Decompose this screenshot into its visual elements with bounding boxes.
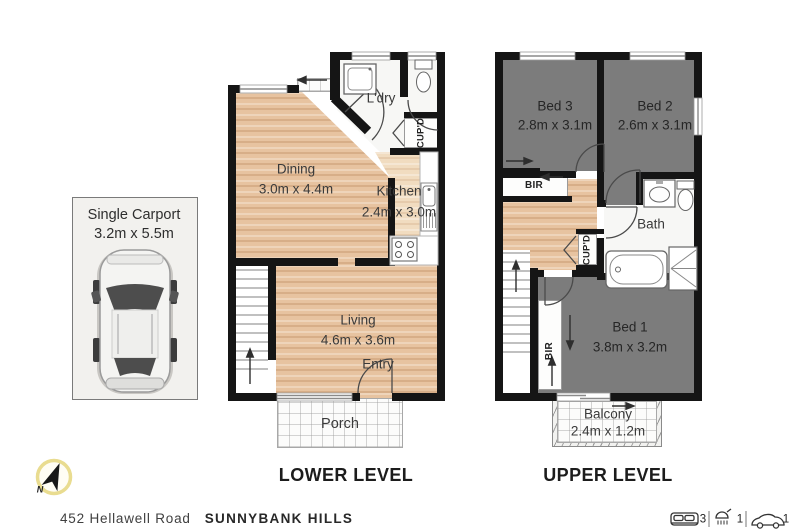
living-label: Living <box>340 313 375 327</box>
toilet-icon-upper <box>677 181 694 211</box>
bifold-door-upper <box>564 236 576 264</box>
entry-label: Entry <box>362 357 394 371</box>
bir-bed1-label: BIR <box>545 342 555 360</box>
bed-count: 3 <box>700 514 706 526</box>
living-dims: 4.6m x 3.6m <box>321 333 395 347</box>
bed3-dims: 2.8m x 3.1m <box>518 118 592 132</box>
bath-label: Bath <box>637 217 665 231</box>
porch-label: Porch <box>321 417 359 432</box>
bath-count: 1 <box>737 514 743 526</box>
dining-dims: 3.0m x 4.4m <box>259 182 333 196</box>
lower-level-title: LOWER LEVEL <box>279 466 413 484</box>
balcony-dims: 2.4m x 1.2m <box>571 424 645 438</box>
carport-dims: 3.2m x 5.5m <box>94 227 174 242</box>
stove-icon <box>392 238 417 261</box>
car-count: 1 <box>783 514 789 526</box>
floorplan-page: Dining 3.0m x 4.4m Kitchen 2.4m x 3.0m L… <box>0 0 800 529</box>
bir-bed3-label: BIR <box>525 181 543 191</box>
property-address: 452 Hellawell RoadSUNNYBANK HILLS <box>60 511 353 526</box>
bed2-label: Bed 2 <box>637 99 672 113</box>
shower-cubicle-icon <box>669 247 697 290</box>
bathtub-icon <box>606 251 667 288</box>
suburb: SUNNYBANK HILLS <box>205 511 354 526</box>
bed1-label: Bed 1 <box>612 320 647 334</box>
north-label: N <box>37 486 44 495</box>
car-top-view <box>91 250 179 394</box>
summary-icons <box>671 509 784 528</box>
kitchen-label: Kitchen <box>376 184 421 198</box>
bed2-dims: 2.6m x 3.1m <box>618 118 692 132</box>
kitchen-dims: 2.4m x 3.0m <box>362 205 436 219</box>
shower-icon <box>716 509 731 525</box>
laundry-fixtures <box>344 60 432 94</box>
balcony-label: Balcony <box>584 407 632 421</box>
dining-label: Dining <box>277 162 315 176</box>
bed3-label: Bed 3 <box>537 99 572 113</box>
street-address: 452 Hellawell Road <box>60 511 191 526</box>
upper-level-title: UPPER LEVEL <box>543 466 672 484</box>
carport-label: Single Carport <box>88 208 181 223</box>
cupboard-lower-label: CUP'D <box>416 118 426 148</box>
cupboard-upper-label: CUP'D <box>582 235 592 265</box>
bed-icon <box>671 513 698 525</box>
bifold-door-lower <box>393 120 404 146</box>
floorplan-linework <box>0 0 800 529</box>
toilet-icon <box>415 60 432 92</box>
stair-steps <box>236 253 530 369</box>
car-icon <box>752 514 784 528</box>
laundry-label: L'dry <box>367 91 396 105</box>
vanity-icon <box>644 180 675 207</box>
bed1-dims: 3.8m x 3.2m <box>593 340 667 354</box>
chamfer-wall <box>334 98 368 131</box>
